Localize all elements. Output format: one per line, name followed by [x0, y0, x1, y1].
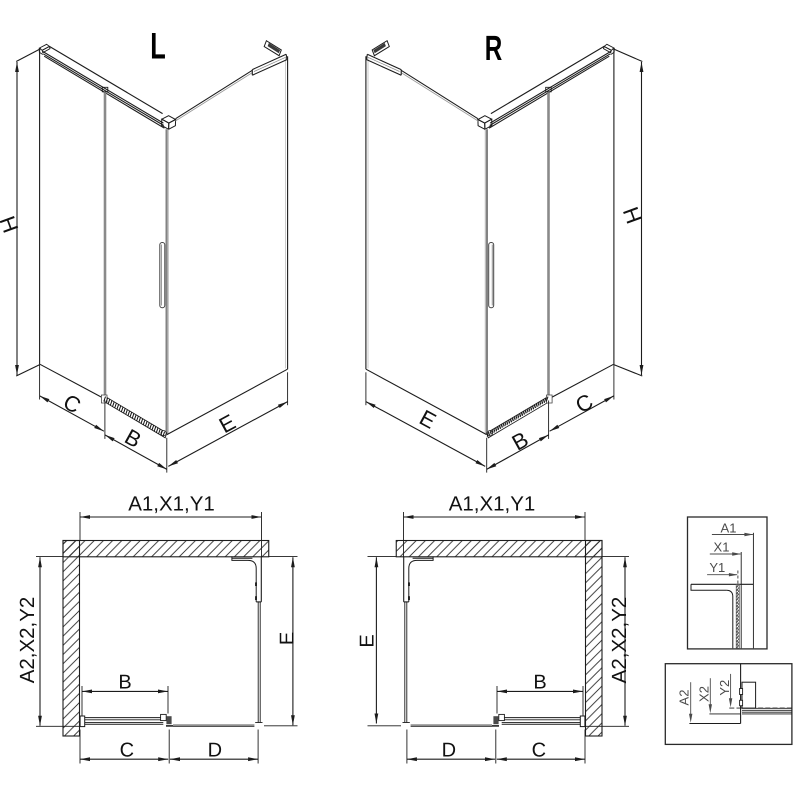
- svg-text:A2: A2: [676, 690, 691, 706]
- svg-text:A1: A1: [721, 521, 737, 536]
- svg-text:Y1: Y1: [709, 560, 725, 575]
- svg-text:D: D: [208, 739, 222, 761]
- svg-text:Y2: Y2: [717, 680, 732, 696]
- svg-text:A2,X2,Y2: A2,X2,Y2: [608, 597, 631, 684]
- svg-text:B: B: [118, 671, 131, 693]
- svg-text:B: B: [533, 671, 546, 693]
- svg-text:E: E: [356, 634, 378, 647]
- svg-text:R: R: [485, 29, 503, 68]
- svg-text:E: E: [276, 632, 298, 645]
- svg-text:C: C: [120, 739, 134, 761]
- svg-text:C: C: [532, 739, 546, 761]
- svg-text:L: L: [150, 26, 166, 67]
- svg-text:A1,X1,Y1: A1,X1,Y1: [128, 493, 215, 516]
- svg-text:D: D: [442, 739, 456, 761]
- svg-text:X2: X2: [696, 686, 711, 702]
- svg-text:A2,X2,Y2: A2,X2,Y2: [16, 597, 39, 684]
- svg-text:A1,X1,Y1: A1,X1,Y1: [449, 493, 536, 516]
- svg-text:X1: X1: [714, 540, 730, 555]
